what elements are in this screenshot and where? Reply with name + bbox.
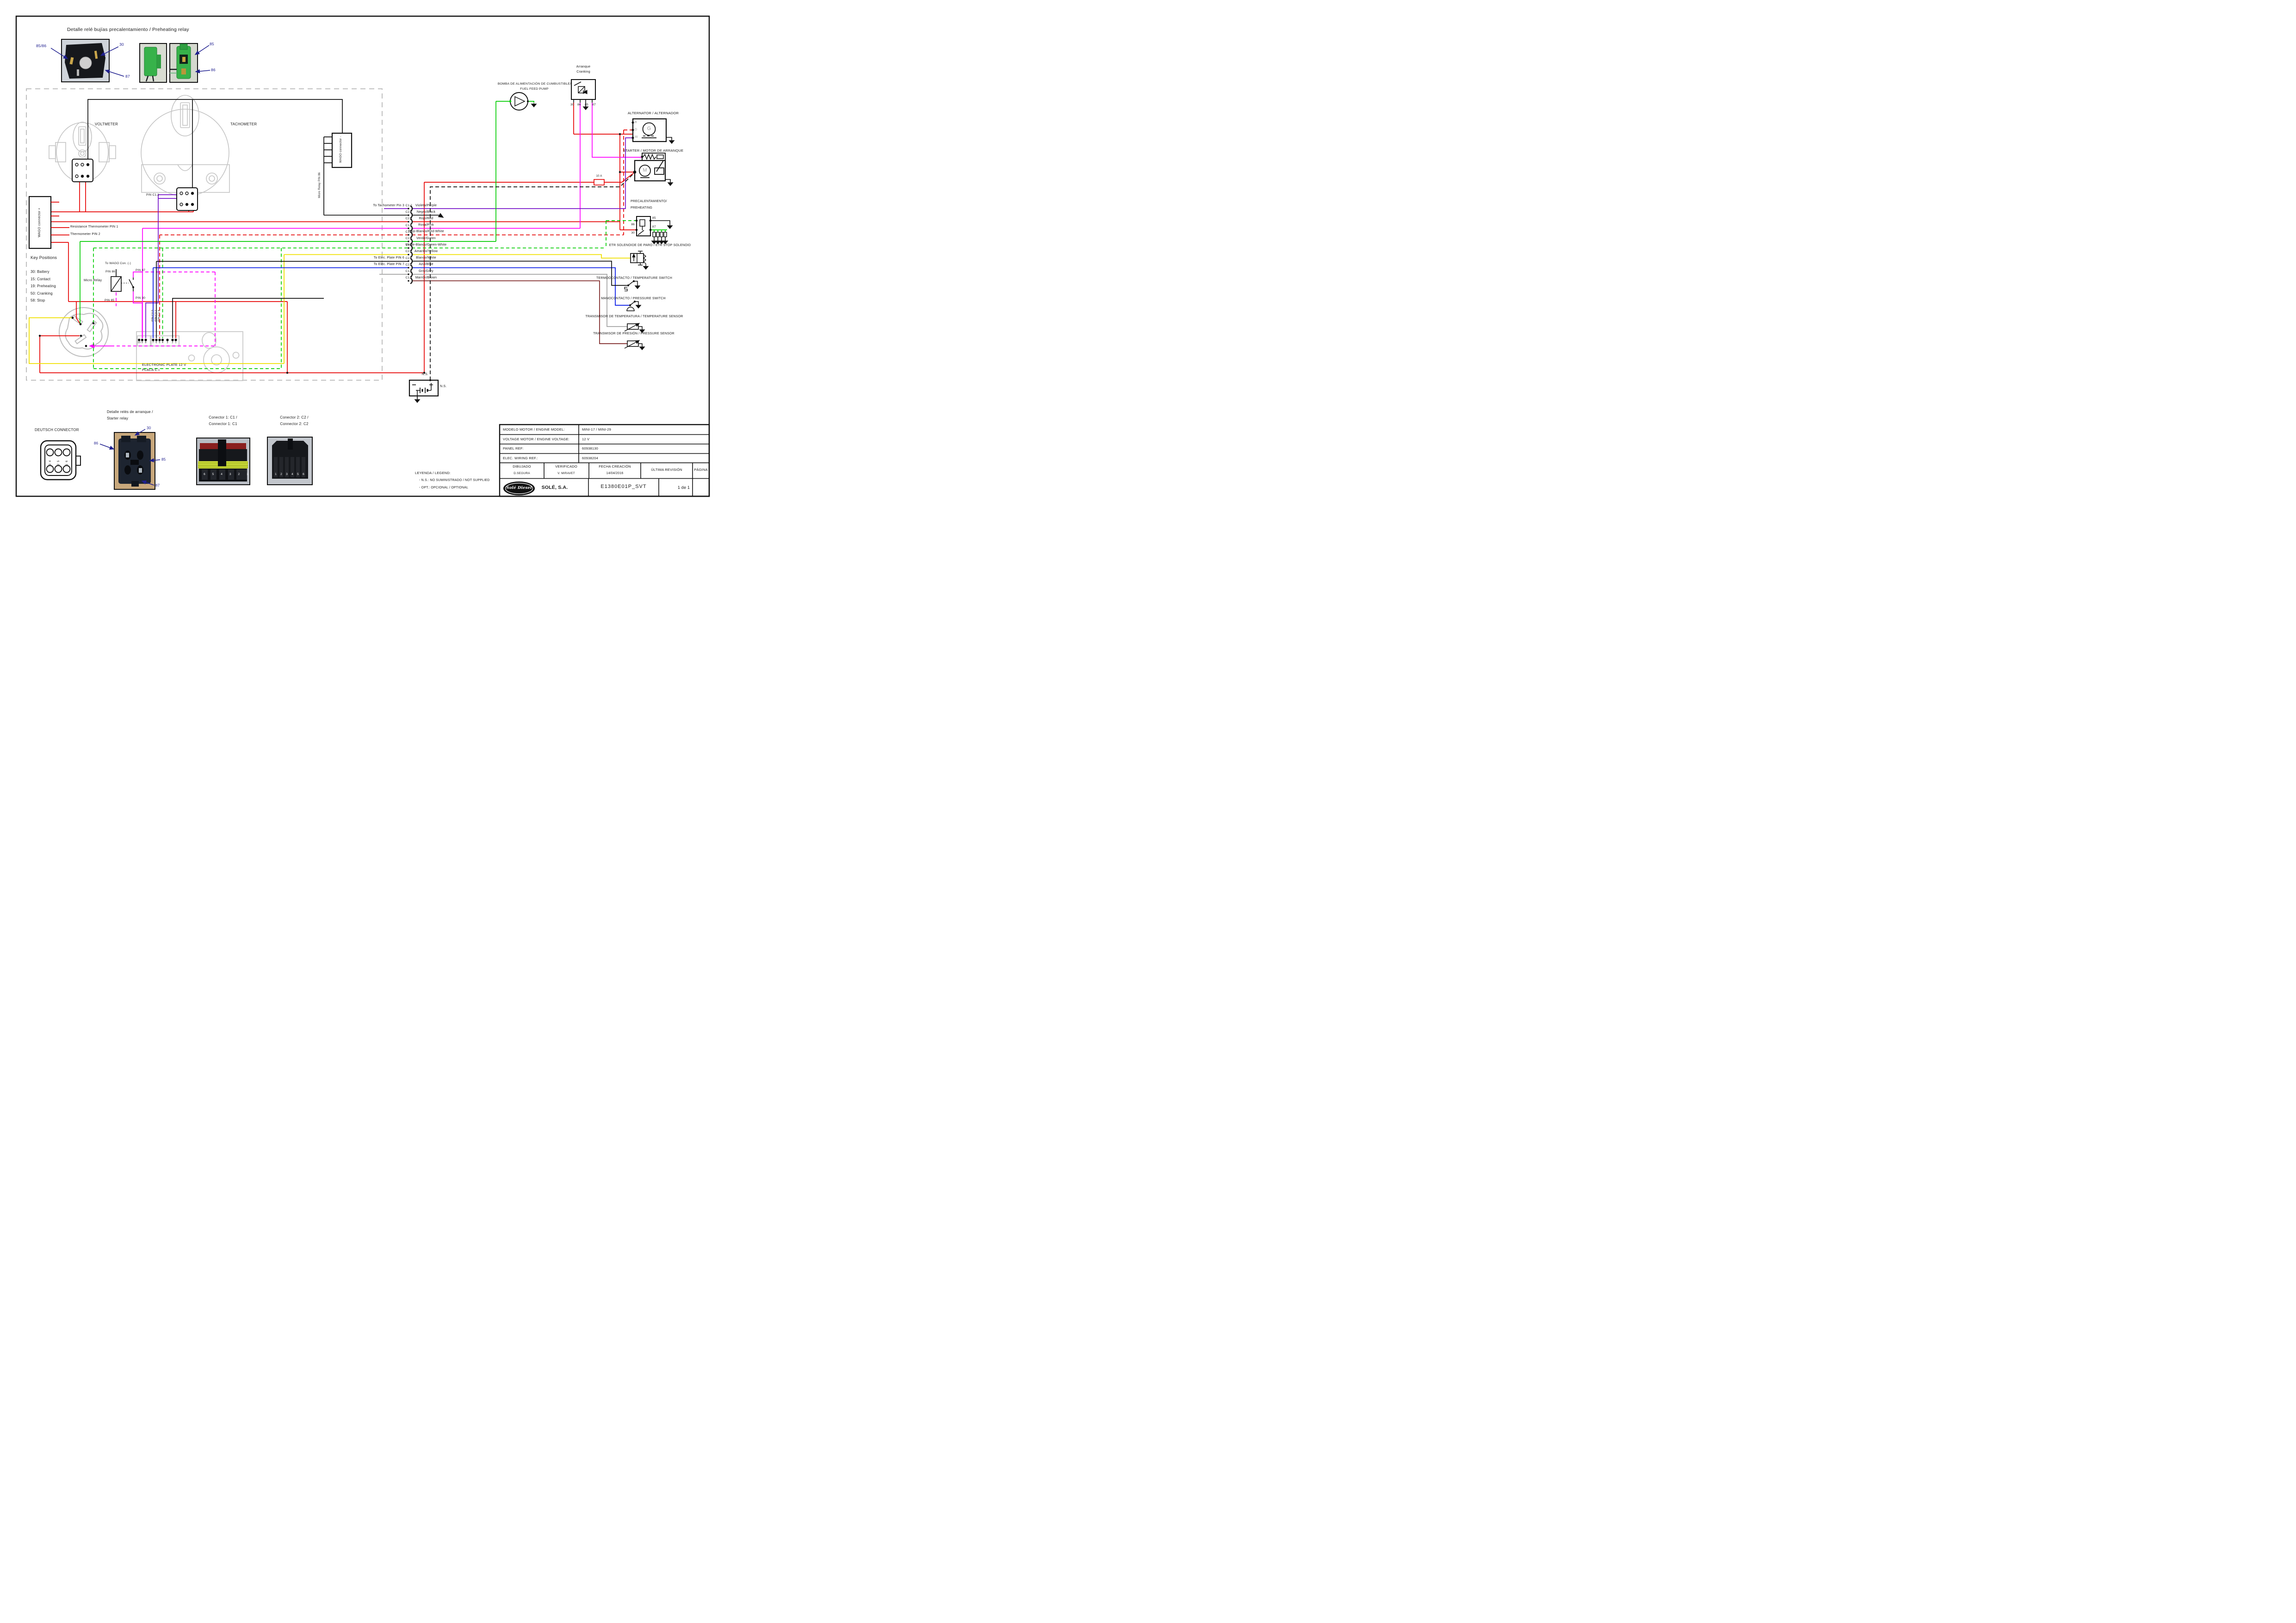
deutsch-pin-number: 2: [57, 463, 60, 465]
starter-relay-30: 30: [147, 426, 151, 430]
alternator-terminal-b: B: [635, 121, 637, 124]
c1-pin-number: 3: [229, 473, 231, 476]
wire-connector-dot: [408, 221, 409, 222]
micro-relay-pin86-wire-label: Micro Relay PIN 86: [318, 173, 321, 198]
plate-pin-c21-label: PIN C2.1: [155, 310, 157, 321]
deutsch-pin-number: 1: [66, 463, 68, 465]
cranking-pin-85: 85: [585, 103, 588, 106]
alternator-title: ALTERNATOR / ALTERNADOR: [628, 111, 679, 115]
c2-title-1: Conector 2: C2 /: [280, 415, 308, 420]
wire-name: Azul/Blue: [419, 263, 433, 266]
label-87: 87: [125, 74, 130, 79]
deutsch-pin-number: 5: [57, 460, 60, 462]
black-wires: [88, 99, 634, 399]
table-panel-ref-label: PANEL REF:: [503, 446, 524, 450]
plate-pin-dot: [141, 339, 143, 341]
plate-pin-number: 3: [167, 341, 168, 344]
plate-title-2: PLACA C.I.: [142, 368, 161, 372]
blue-wires: [153, 268, 630, 338]
cranking-pin-87: 87: [592, 103, 596, 106]
plate-pin-number: 8: [145, 341, 146, 344]
alternator-g: G: [647, 126, 651, 131]
tachometer-connector: [177, 188, 198, 210]
wire-code: C2.6: [405, 237, 412, 240]
fuel-pump-title-1: BOMBA DE ALIMENTACIÓN DE CUMBUSTIBLE/: [498, 82, 571, 86]
tachometer-label: TACHOMETER: [230, 122, 257, 126]
wire-code: C1.3: [405, 276, 412, 279]
starter-relay-title-1: Detalle relés de arranque /: [107, 410, 153, 414]
label-85: 85: [210, 42, 214, 46]
wire-connector-dot: [408, 215, 409, 216]
table-wiring-ref-label: ELEC. WIRING REF.:: [503, 456, 538, 460]
deutsch-pin-number: 6: [66, 460, 68, 462]
wire-name: Rosa/Pink: [418, 223, 434, 227]
key-position-item: 58: Stop: [31, 298, 45, 302]
to-wago-label: To WAGO Con. (-): [105, 262, 131, 265]
plate-pin-dot: [155, 339, 157, 341]
plate-pin-dot: [171, 339, 173, 341]
plate-pin-number: 6: [155, 341, 157, 344]
table-verificado-value: V. MIRAVET: [557, 472, 575, 475]
plate-pin-dot: [144, 339, 147, 341]
key-position-item: 50: Cranking: [31, 291, 53, 296]
table-verificado: VERIFICADO: [555, 464, 577, 469]
wire-left-label: To Tachometer Pin 3: [373, 204, 404, 207]
wire-code: C2.3: [405, 250, 412, 253]
plate-title-1: ELECTRONIC PLATE 12 V: [142, 363, 186, 367]
cranking-title-1: Arranque: [576, 65, 590, 68]
wire-connector-dot: [408, 241, 409, 242]
micro-relay-symbol: [111, 277, 134, 291]
c1-pin-number: 4: [221, 473, 223, 476]
plate-pin-dot: [174, 339, 177, 341]
wire-connector-dot: [408, 234, 409, 235]
wire-name: Negro/Black: [417, 210, 435, 214]
deutsch-connector-symbol: [41, 441, 80, 480]
table-fecha-value: 14/04/2016: [606, 472, 623, 475]
starter-relay-85: 85: [161, 457, 166, 462]
green-connector-photo-front: [170, 43, 198, 82]
c2-title-2: Connector 2: C2: [280, 422, 308, 426]
wire-code: C1.5: [405, 270, 412, 273]
key-position-item: 30: Battery: [31, 270, 50, 274]
plate-pin-number: 7: [152, 341, 154, 344]
diagram-artwork: [0, 0, 725, 512]
wire-code: C2.4: [405, 217, 412, 220]
wire-connector-dot: [408, 208, 409, 209]
wire-name: Rojo/Red: [419, 217, 433, 220]
red-white-wires: [160, 130, 633, 338]
c1-pin-number: 1: [247, 473, 248, 476]
pin87-label: PIN 87: [136, 269, 145, 272]
fuel-pump-title-2: FUEL FEED PUMP: [520, 87, 548, 91]
plate-pin-number: 4: [162, 341, 163, 344]
wire-connector-dot: [408, 267, 409, 268]
table-panel-ref-value: 60938130: [582, 446, 598, 450]
cranking-pin-86: 86: [577, 103, 581, 106]
plate-pin-dot: [152, 339, 154, 341]
pressure-sensor-symbol: [625, 340, 642, 348]
wago-plus-label: WAGO connector +: [38, 208, 41, 237]
key-positions-title: Key Positions: [31, 255, 57, 260]
preheating-title-1: PRECALENTAMIENTO/: [631, 200, 667, 203]
yellow-wires: [29, 254, 631, 364]
etr-title: ETR SOLENOIDE DE PARO / ETR STOP SOLENOI…: [609, 244, 691, 247]
drawing-code: E1380E01P_SVT: [600, 484, 646, 489]
wire-connector-dot: [408, 260, 409, 262]
starter-relay-87: 87: [155, 483, 160, 488]
wire-name: Violeta/Purple: [415, 204, 437, 207]
c1-pin-number: 5: [212, 473, 214, 476]
alternator-terminal-d: D: [635, 128, 637, 131]
battery-ns-right: N.S.: [440, 385, 446, 388]
wire-name: Blanco/White: [416, 256, 436, 259]
alternator-terminal-w: W: [635, 136, 638, 139]
c2-pin-number: 1: [275, 473, 277, 476]
pressure-switch-title: MANOCONTACTO / PRESSURE SWITCH: [601, 297, 666, 300]
table-dibujado: DIBUJADO: [513, 464, 531, 469]
connector-c2-photo: [267, 437, 312, 485]
green-connector-photo-side: [140, 43, 167, 82]
preheating-pin-87: 87: [652, 225, 656, 228]
preheating-pin-86: 86: [631, 223, 635, 226]
wire-code: C1.1: [405, 224, 412, 227]
c2-pin-number: 6: [303, 473, 304, 476]
wire-code: C2.1: [405, 257, 412, 260]
key-switch-outline: [59, 308, 108, 357]
plate-pin-dot: [161, 339, 164, 341]
table-wiring-ref-value: 60938204: [582, 456, 598, 460]
tachometer-gauge: [141, 95, 229, 202]
plate-pin-number: 1: [175, 341, 176, 344]
wire-connector-dot: [408, 247, 409, 249]
fuse-10a-label: 10 A: [596, 175, 602, 178]
preheating-pin-30: 30: [631, 231, 635, 235]
resistance-thermometer-label: Resistance Thermometer PIN 1: [70, 225, 118, 228]
table-ultima-revision: ÚLTIMA REVISIÓN: [651, 468, 682, 472]
page-number: 1 de 1: [678, 485, 690, 490]
wire-connector-dot: [408, 228, 409, 229]
wire-name: Gris/Grey: [419, 270, 433, 273]
wire-connector-dot: [408, 273, 409, 275]
table-fecha: FECHA CREACIÓN: [599, 464, 631, 469]
c2-pin-number: 3: [286, 473, 288, 476]
cranking-relay-symbol: [571, 80, 595, 106]
legend-ns: - N.S.: NO SUMINISTRADO / NOT SUPPLIED: [419, 479, 490, 482]
wire-connector-dot: [408, 280, 409, 282]
glow-plugs: [653, 232, 667, 241]
table-dibujado-value: D.SEGURA: [514, 472, 530, 475]
plate-pin-c25-label: PIN C2.5: [151, 310, 154, 321]
label-30: 30: [119, 42, 124, 47]
temperature-sensor-symbol: [625, 323, 642, 331]
deutsch-title: DEUTSCH CONNECTOR: [35, 428, 79, 432]
junction-dots: [39, 133, 621, 381]
grey-wires: [379, 274, 627, 327]
c1-title-1: Conector 1: C1 /: [209, 415, 237, 420]
c2-pin-number: 2: [280, 473, 282, 476]
c2-pin-number: 5: [297, 473, 299, 476]
key-position-item: 19: Preheating: [31, 284, 56, 288]
plate-pin-number: 9: [142, 341, 143, 344]
plate-pin-number: 5: [159, 341, 160, 344]
table-model-value: MINI-17 / MINI-29: [582, 427, 611, 432]
key-position-item: 15: Contact: [31, 277, 50, 281]
starter-title: STARTER / MOTOR DE ARRANQUE: [623, 148, 683, 153]
plate-pin-number: 10: [137, 341, 141, 344]
table-voltage-value: 12 V: [582, 437, 589, 441]
plate-pin-dot: [158, 339, 161, 341]
wire-connector-dot: [408, 254, 409, 255]
c1-pin-number: 6: [204, 473, 205, 476]
temperature-sensor-title: TRANSMISOR DE TEMPERATURA / TEMPERATURE …: [586, 315, 683, 318]
wire-code: C1.2: [405, 204, 412, 207]
preheat-detail-title: Detalle relé bujías precalentamiento / P…: [67, 27, 189, 32]
wire-name: Verde/Green: [416, 237, 436, 240]
purple-wires: [146, 138, 633, 338]
plate-pin-dot: [166, 339, 168, 341]
preheating-title-2: PREHEATING: [631, 206, 652, 210]
battery-symbol: [409, 380, 438, 396]
wire-name: Marrón/Brown: [415, 276, 437, 279]
table-pagina: PÁGINA: [694, 468, 708, 472]
thermometer-label: Thermometer PIN 2: [70, 233, 100, 236]
cranking-pin-30: 30: [570, 103, 574, 106]
connector-c1-photo: [197, 438, 250, 485]
deutsch-pin-number: 3: [49, 463, 52, 465]
voltmeter-label: VOLTMETER: [95, 122, 118, 126]
starter-m: M: [643, 167, 647, 173]
wire-name: Verde-Blanco/Green-White: [406, 243, 446, 247]
cranking-title-2: Cranking: [576, 70, 590, 74]
voltmeter-connector: [72, 159, 93, 182]
logo-text: Solé Diesel: [506, 486, 532, 490]
starter-relay-photo: [114, 432, 155, 489]
temperature-switch-title: TERMOOCONTACTO / TEMPERATURE SWITCH: [596, 277, 672, 280]
wire-name: Rojo-Blanco/Red-White: [408, 230, 444, 233]
wire-name: Amarillo/Yellow: [415, 250, 438, 253]
plate-pin-dot: [138, 339, 140, 341]
wago-minus-label: WAGO connector -: [339, 136, 342, 163]
legend-opt: - OPT.: OPCIONAL / OPTIONAL: [419, 486, 468, 489]
c1-title-2: Connector 1: C1: [209, 422, 237, 426]
preheat-relay-photo: [62, 39, 109, 82]
c2-pin-number: 4: [291, 473, 293, 476]
wire-code: C2.2: [405, 210, 412, 214]
label-86: 86: [211, 68, 216, 72]
wiring-diagram-page: Detalle relé bujías precalentamiento / P…: [0, 0, 725, 512]
pin85-label: PIN 85: [105, 299, 114, 302]
c1-pin-number: 2: [238, 473, 240, 476]
plate-pin-c14-label: PIN C1.4: [158, 310, 161, 321]
deutsch-pin-number: 4: [49, 460, 52, 462]
wago-plus-stubs: [51, 202, 69, 235]
wire-left-label: To Elec. Plate PIN 6: [374, 256, 404, 259]
starter-relay-title-2: Starter relay: [107, 416, 128, 420]
starter-relay-86: 86: [94, 441, 98, 445]
battery-ns-top: N.S.: [422, 373, 428, 376]
plate-pin-number: 2: [172, 341, 173, 344]
company-name: SOLÉ, S.A.: [542, 485, 568, 490]
micro-relay-label: Micro Relay: [84, 279, 102, 282]
etr-solenoid-symbol: [631, 251, 646, 265]
label-85-86: 85/86: [36, 43, 46, 48]
table-voltage-label: VOLTAGE MOTOR / ENGINE VOLTAGE:: [503, 437, 569, 441]
table-model-label: MODELO MOTOR / ENGINE MODEL:: [503, 427, 565, 432]
pin30-label: PIN 30: [136, 296, 145, 300]
preheating-pin-85: 85: [652, 216, 656, 220]
pressure-sensor-title: TRANSMISOR DE PRESIÓN / PRESSURE SENSOR: [593, 332, 674, 335]
fuel-pump-symbol: [509, 93, 529, 110]
wire-left-label: To Elec. Plate PIN 7: [374, 263, 404, 266]
legend-title: LEYENDA / LEGEND:: [415, 471, 451, 475]
pin-c12-label: PIN C1.2: [146, 193, 159, 197]
wire-code: C2.5: [405, 263, 412, 266]
pin86-label: PIN 86: [105, 270, 115, 273]
